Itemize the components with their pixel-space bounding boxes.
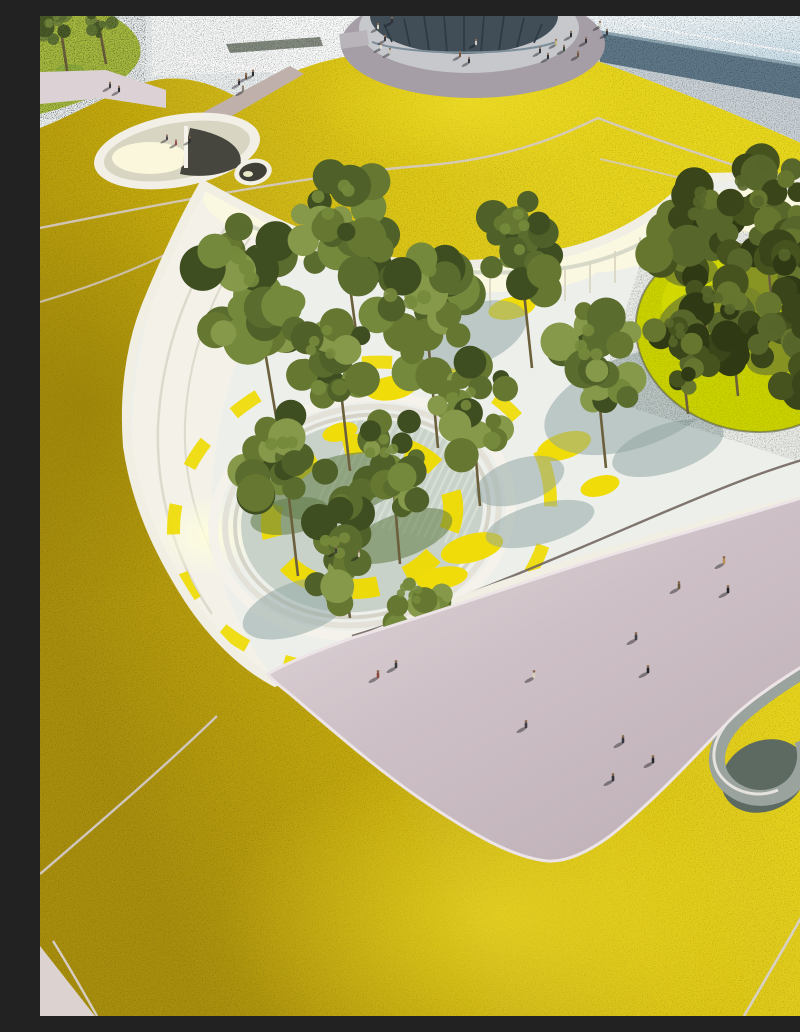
tree-foliage-highlight [500, 223, 511, 234]
figure-body [189, 138, 191, 142]
tree-foliage [454, 346, 487, 379]
figure-head [612, 773, 615, 776]
tree-foliage [717, 189, 745, 217]
figure-head [389, 48, 391, 50]
figure-head [358, 550, 360, 552]
figure-body [380, 45, 382, 50]
tree-foliage-highlight [712, 292, 723, 303]
figure-head [118, 86, 120, 88]
tree-foliage [428, 396, 448, 416]
figure-body [563, 47, 565, 52]
figure-head [652, 755, 655, 758]
tree-foliage [606, 332, 633, 359]
tree-foliage-highlight [514, 244, 525, 255]
figure-body [555, 41, 557, 46]
tree-foliage [672, 232, 694, 254]
tree-foliage [444, 438, 478, 472]
tree-foliage-highlight [339, 532, 350, 543]
tree-foliage-highlight [513, 209, 524, 220]
tree-foliage [338, 255, 379, 296]
figure-body [727, 587, 730, 593]
tree-foliage [586, 359, 609, 382]
tree-foliage-highlight [417, 290, 431, 304]
tree-foliage [360, 420, 381, 441]
figure-body [678, 583, 681, 589]
figure-head [555, 39, 557, 41]
tree-foliage [345, 362, 380, 397]
tree-foliage-highlight [590, 348, 602, 360]
figure-head [189, 136, 191, 138]
tree-foliage [387, 595, 409, 617]
figure-head [468, 57, 470, 59]
tree-foliage [106, 16, 119, 29]
tree-foliage-highlight [665, 318, 675, 328]
figure-body [606, 31, 608, 36]
figure-head [245, 73, 247, 75]
tree-foliage-highlight [379, 447, 390, 458]
figure-head [727, 585, 730, 588]
figure-head [109, 82, 111, 84]
tree-foliage-highlight [397, 589, 405, 597]
figure-body [242, 88, 244, 93]
figure-head [475, 39, 477, 41]
tree-foliage-highlight [412, 596, 420, 604]
tree-foliage-highlight [322, 325, 333, 336]
tree-foliage-highlight [756, 160, 768, 172]
figure-body [389, 50, 391, 55]
figure-head [533, 670, 536, 673]
scene-canvas: Architectural scale model — undulating y… [40, 16, 800, 1016]
figure-body [384, 37, 386, 42]
tree-foliage [211, 320, 237, 346]
tree-foliage [282, 450, 308, 476]
oval-glow [112, 142, 188, 174]
figure-head [335, 546, 337, 548]
figure-body [475, 41, 477, 46]
tree-foliage-highlight [668, 338, 678, 348]
tree-foliage [480, 256, 502, 278]
tree-foliage-highlight [735, 175, 747, 187]
figure-body [622, 737, 625, 743]
tree-foliage-highlight [778, 249, 790, 261]
figure-body [652, 757, 655, 763]
figure-head [547, 53, 549, 55]
figure-head [577, 51, 579, 53]
tree-foliage [327, 497, 354, 524]
tree-foliage [388, 463, 417, 492]
tree-foliage [404, 488, 429, 513]
figure-body [335, 548, 337, 553]
tree-foliage-highlight [446, 393, 457, 404]
tree-foliage-highlight [306, 345, 317, 356]
figure-body [459, 53, 461, 58]
figure-head [647, 665, 650, 668]
figure-body [395, 662, 398, 668]
figure-body [252, 72, 254, 77]
figure-head [570, 31, 572, 33]
tree-foliage-highlight [786, 337, 797, 348]
figure-head [599, 21, 601, 23]
tree-foliage [237, 474, 275, 512]
tree-foliage [748, 334, 769, 355]
tree-foliage-highlight [518, 220, 529, 231]
figure-body [547, 55, 549, 60]
figure-head [384, 35, 386, 37]
figure-head [175, 139, 177, 141]
figure-head [377, 670, 380, 673]
figure-body [539, 49, 541, 54]
figure-body [577, 53, 579, 58]
figure-head [585, 37, 587, 39]
figure-body [377, 672, 380, 678]
tree-foliage [57, 25, 70, 38]
tree-foliage-highlight [675, 323, 685, 333]
tree-foliage-highlight [338, 180, 351, 193]
tree-foliage [483, 432, 501, 450]
figure-body [585, 39, 587, 44]
figure-head [377, 23, 379, 25]
figure-body [635, 634, 638, 640]
tree-foliage [320, 569, 354, 603]
tree-foliage [312, 459, 338, 485]
figure-head [606, 29, 608, 31]
figure-body [525, 722, 528, 728]
figure-body [391, 19, 393, 24]
figure-head [242, 86, 244, 88]
tree-foliage-highlight [724, 304, 735, 315]
tree-foliage-highlight [312, 190, 325, 203]
figure-head [622, 735, 625, 738]
tree-foliage-highlight [578, 348, 590, 360]
tree-foliage-highlight [384, 288, 398, 302]
figure-head [635, 632, 638, 635]
tree-foliage [86, 25, 98, 37]
figure-body [358, 552, 360, 557]
figure-body [109, 84, 111, 89]
figure-body [468, 59, 470, 64]
tree-foliage-highlight [277, 437, 289, 449]
tree-foliage-highlight [379, 434, 390, 445]
tree-foliage [332, 335, 362, 365]
small-oval-glow [243, 171, 253, 177]
tree-foliage [44, 18, 53, 27]
tree-foliage [439, 410, 472, 443]
tree-foliage [527, 254, 562, 289]
figure-head [678, 581, 681, 584]
figure-body [118, 88, 120, 93]
figure-body [570, 33, 572, 38]
tree-foliage [268, 418, 305, 455]
figure-head [525, 720, 528, 723]
tree-foliage-highlight [693, 195, 706, 208]
tree-foliage-highlight [582, 324, 594, 336]
figure-head [391, 17, 393, 19]
tree-foliage-highlight [320, 535, 331, 546]
tree-foliage-highlight [461, 400, 472, 411]
figure-body [377, 25, 379, 30]
figure-body [647, 667, 650, 673]
figure-head [395, 660, 398, 663]
tree-foliage [642, 318, 666, 342]
tree-foliage [492, 376, 518, 402]
tree-foliage [311, 380, 326, 395]
figure-head [563, 45, 565, 47]
tree-foliage [711, 320, 742, 351]
figure-body [612, 775, 615, 781]
figure-head [166, 134, 168, 136]
tree-foliage [337, 223, 355, 241]
tree-foliage [527, 212, 550, 235]
tree-foliage [397, 410, 421, 434]
tree-foliage-highlight [752, 195, 764, 207]
tree-foliage-highlight [465, 387, 476, 398]
tree-foliage-highlight [325, 348, 336, 359]
figure-body [599, 23, 601, 28]
figure-body [175, 141, 177, 145]
figure-head [252, 70, 254, 72]
tree-foliage [225, 213, 253, 241]
tree-foliage-highlight [244, 272, 260, 288]
tree-foliage-highlight [768, 322, 779, 333]
figure-head [380, 43, 382, 45]
tree-foliage [486, 414, 502, 430]
tree-foliage-highlight [423, 263, 437, 277]
figure-head [539, 47, 541, 49]
tree-foliage [777, 170, 795, 188]
figure-head [238, 79, 240, 81]
figure-body [166, 136, 168, 140]
model-photo: Photograph of a museum architectural mod… [40, 16, 800, 1016]
figure-head [723, 556, 726, 559]
figure-body [723, 558, 726, 564]
tree-foliage [635, 235, 673, 273]
tree-foliage-highlight [265, 438, 277, 450]
figure-head [459, 51, 461, 53]
tree-foliage [617, 386, 639, 408]
tree-foliage-highlight [231, 249, 247, 265]
tree-foliage [681, 367, 696, 382]
figure-body [533, 672, 536, 678]
tree-foliage [99, 21, 106, 28]
tree-foliage-highlight [404, 295, 418, 309]
tree-foliage-highlight [689, 207, 702, 220]
tree-foliage-highlight [322, 207, 335, 220]
tree-foliage-highlight [414, 586, 422, 594]
tree-foliage-highlight [365, 447, 376, 458]
